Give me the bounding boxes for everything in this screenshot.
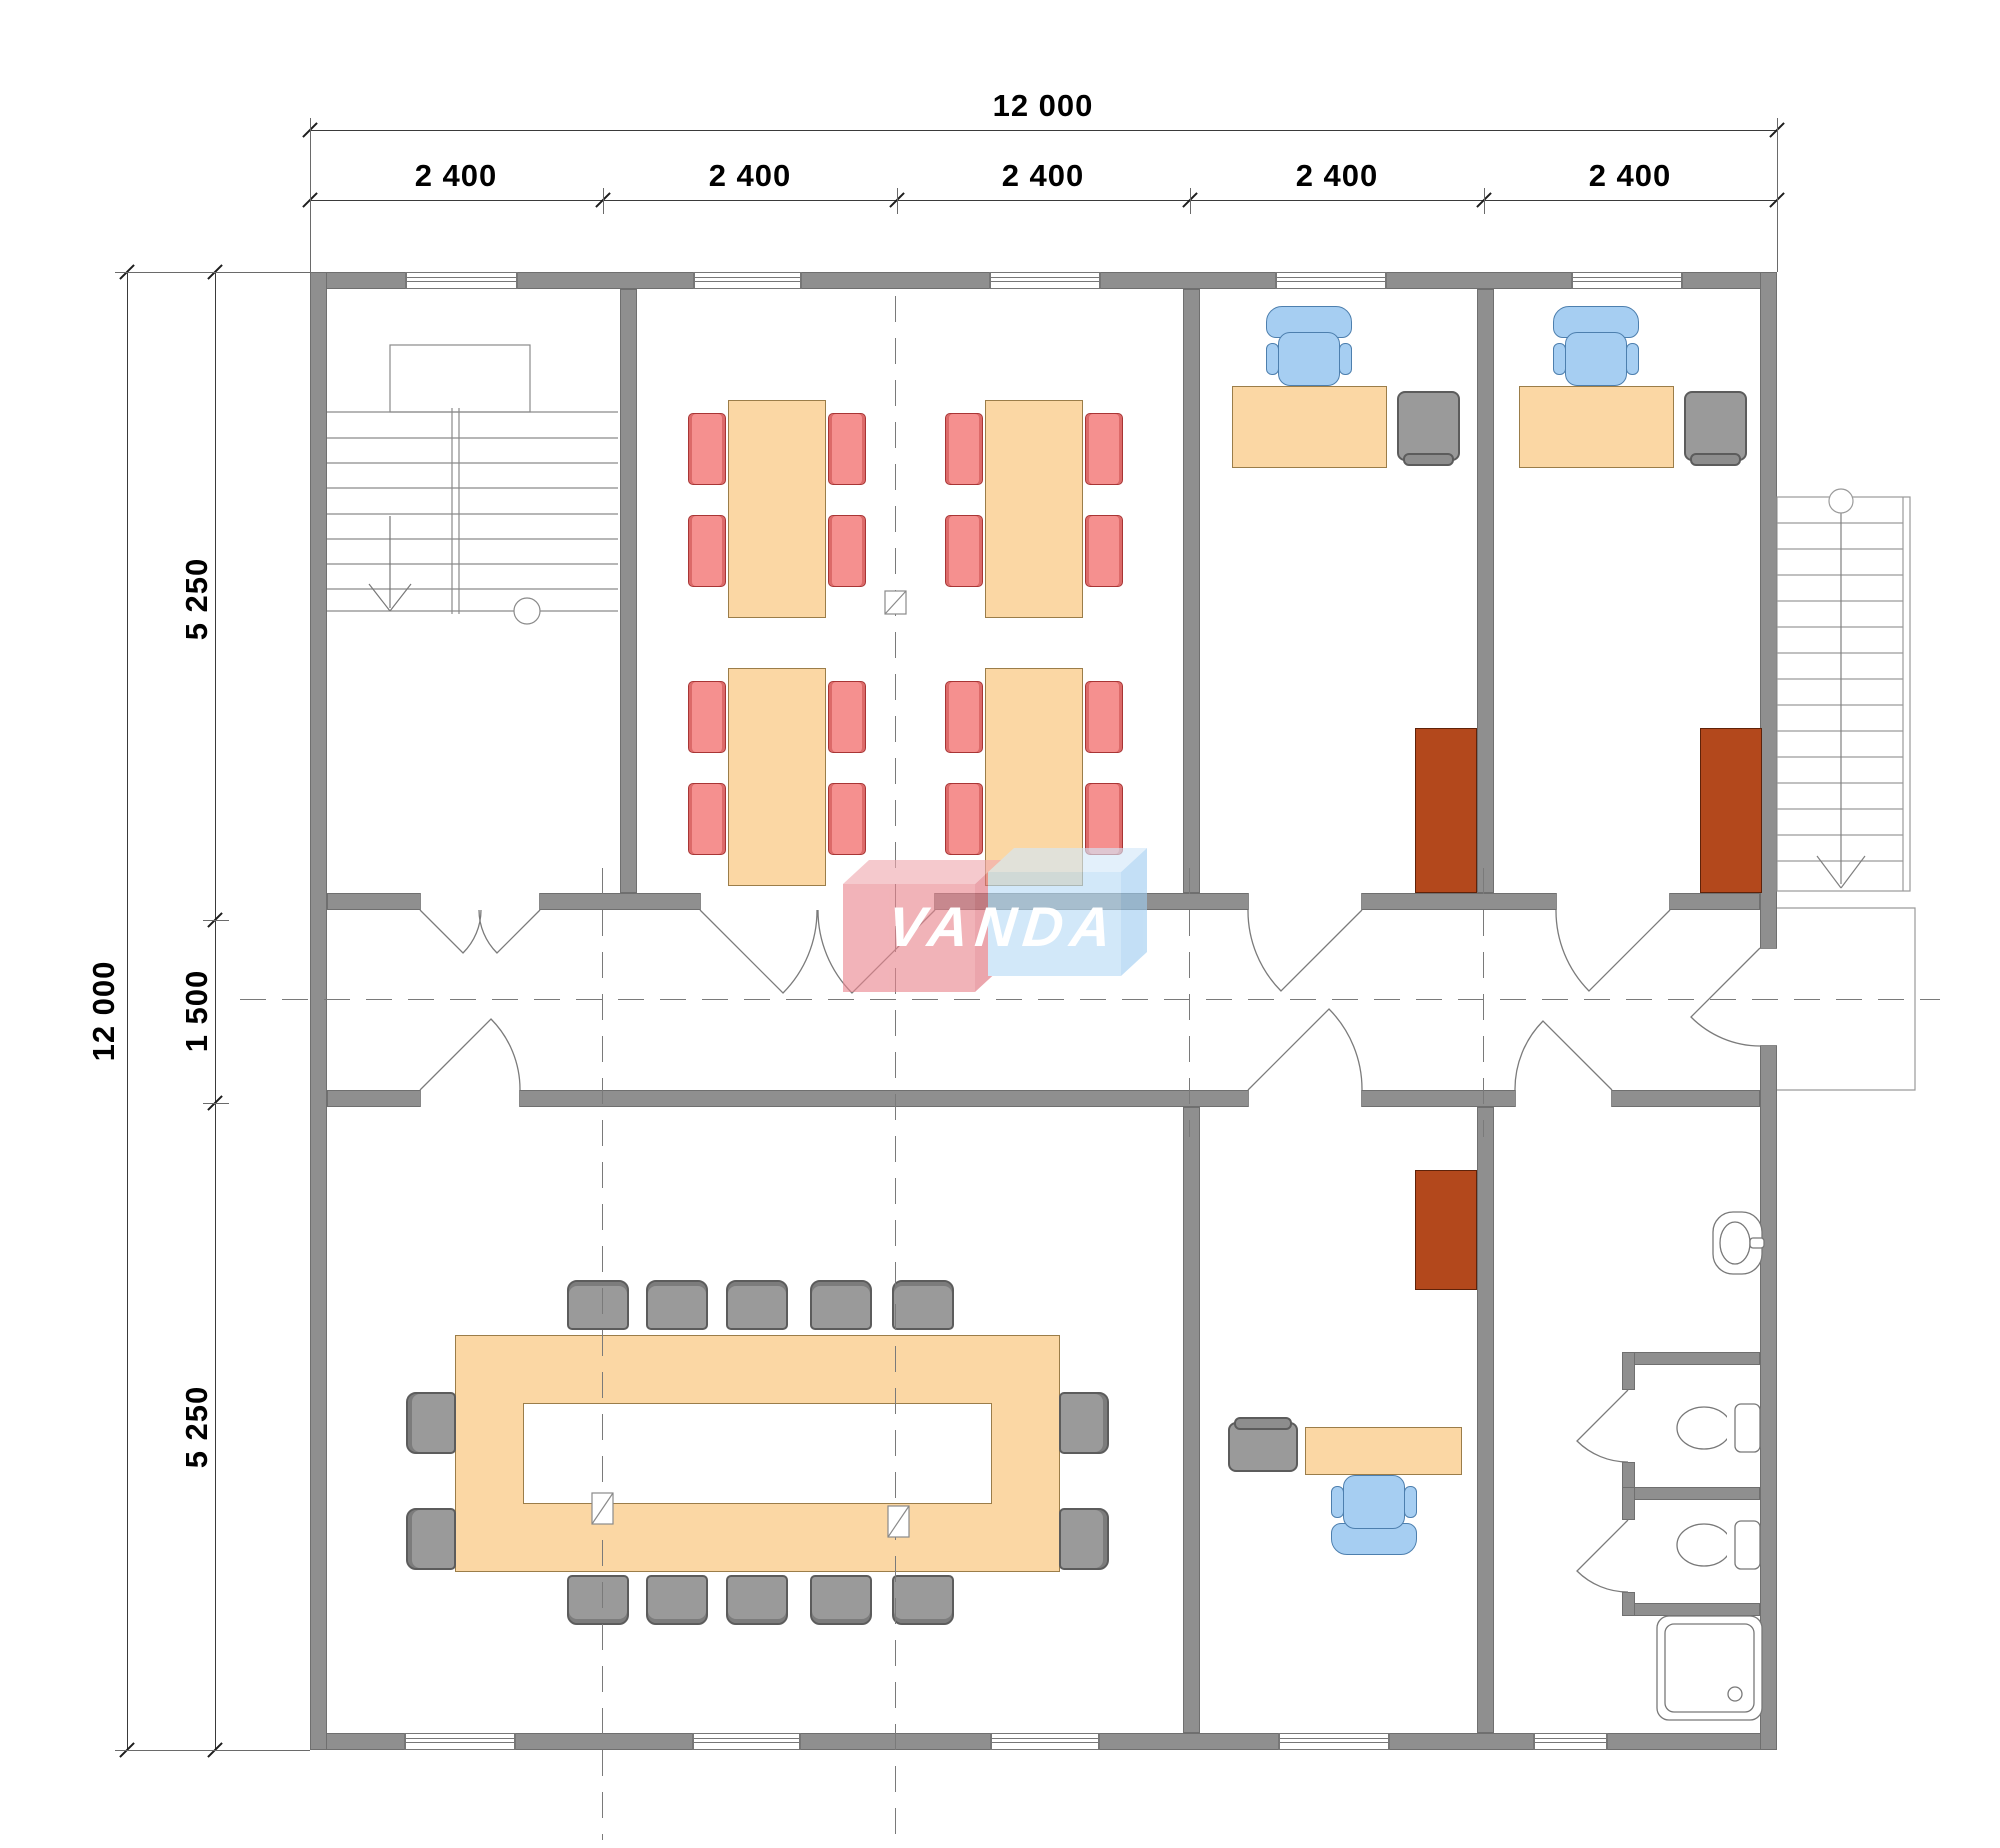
door-stairwell-leaf-right	[479, 910, 540, 953]
dim-extension	[203, 1103, 229, 1104]
doors	[420, 910, 1760, 1592]
logo-pink-top	[843, 860, 1001, 884]
column-symbol	[885, 591, 906, 614]
columns	[592, 591, 909, 1537]
dim-extension	[115, 272, 310, 273]
door-office2	[1556, 910, 1670, 991]
door-entry	[1691, 948, 1760, 1046]
dim-extension	[310, 118, 311, 272]
dim-bay-label: 2 400	[396, 158, 516, 194]
column-symbol	[888, 1506, 909, 1537]
dim-line-left-rows	[215, 272, 216, 1750]
dim-extension	[1190, 188, 1191, 214]
dim-extension	[897, 188, 898, 214]
toilet-1	[1677, 1404, 1760, 1452]
dim-extension	[203, 920, 229, 921]
sink	[1713, 1212, 1764, 1274]
logo-wordmark: VANDA	[825, 894, 1182, 959]
stair-landing	[390, 345, 530, 412]
dim-extension	[1484, 188, 1485, 214]
dim-extension	[603, 188, 604, 214]
dim-row-label: 1 500	[179, 931, 215, 1091]
dim-line-top-total	[310, 130, 1777, 131]
door-stall2	[1577, 1520, 1628, 1592]
dim-top-total-label: 12 000	[943, 88, 1143, 124]
washroom-fixtures	[1657, 1212, 1764, 1720]
stair-rail	[452, 408, 459, 614]
shower-tray	[1657, 1616, 1762, 1720]
door-stall1	[1577, 1390, 1628, 1462]
dim-bay-label: 2 400	[1570, 158, 1690, 194]
dim-row-label: 5 250	[179, 519, 215, 679]
stair-newel-circle	[514, 598, 540, 624]
door-office3	[1248, 1009, 1362, 1090]
dim-bay-label: 2 400	[690, 158, 810, 194]
logo-blue-top	[988, 848, 1147, 872]
dim-bay-label: 2 400	[1277, 158, 1397, 194]
door-stairwell-leaf-left	[420, 910, 481, 953]
stair-treads	[327, 412, 618, 611]
column-symbol	[592, 1493, 613, 1524]
exterior-stair	[1777, 489, 1915, 1090]
dim-left-total-label: 12 000	[86, 931, 122, 1091]
dim-bay-label: 2 400	[983, 158, 1103, 194]
dim-line-top-bays	[310, 200, 1777, 201]
door-office1	[1248, 910, 1362, 991]
ext-stair-circle	[1829, 489, 1853, 513]
door-washroom	[1515, 1021, 1612, 1090]
door-conference	[420, 1019, 520, 1090]
dim-line-left-total	[127, 272, 128, 1750]
ext-stair-outline	[1777, 497, 1910, 891]
dim-extension	[1777, 118, 1778, 272]
toilet-2	[1677, 1521, 1760, 1569]
porch-outline	[1777, 908, 1915, 1090]
dim-extension	[115, 1750, 310, 1751]
dim-row-label: 5 250	[179, 1347, 215, 1507]
door-room-leaf-left	[700, 910, 817, 993]
floor-plan: VANDA 12 000 2 400 2 400 2 400 2 400 2 4…	[0, 0, 2000, 1848]
stairwell	[327, 345, 618, 624]
